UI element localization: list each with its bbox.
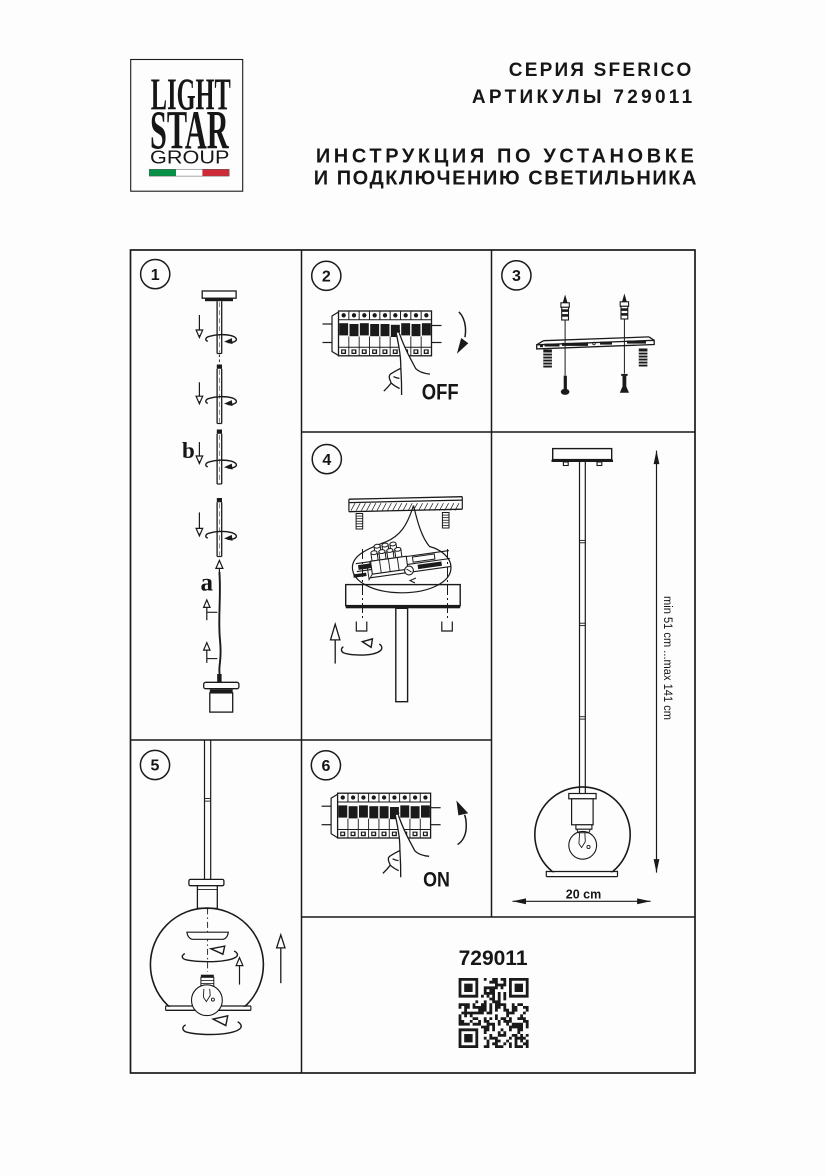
svg-text:СЕРИЯ SFERICO: СЕРИЯ SFERICO bbox=[509, 60, 694, 81]
svg-text:20 cm: 20 cm bbox=[566, 887, 601, 901]
svg-text:min 51 cm ...max 141 cm: min 51 cm ...max 141 cm bbox=[661, 596, 675, 720]
svg-text:ON: ON bbox=[423, 868, 450, 892]
svg-text:b: b bbox=[182, 438, 195, 463]
svg-text:2: 2 bbox=[322, 269, 331, 286]
svg-text:GROUP: GROUP bbox=[150, 148, 229, 168]
svg-text:5: 5 bbox=[151, 758, 160, 775]
svg-text:6: 6 bbox=[321, 758, 330, 775]
svg-text:a: a bbox=[201, 569, 214, 596]
svg-text:АРТИКУЛЫ 729011: АРТИКУЛЫ 729011 bbox=[472, 87, 696, 108]
svg-text:4: 4 bbox=[322, 452, 331, 469]
svg-text:И ПОДКЛЮЧЕНИЮ СВЕТИЛЬНИКА: И ПОДКЛЮЧЕНИЮ СВЕТИЛЬНИКА bbox=[314, 168, 698, 190]
svg-text:1: 1 bbox=[151, 267, 160, 284]
svg-text:3: 3 bbox=[512, 268, 521, 285]
svg-text:OFF: OFF bbox=[422, 380, 459, 405]
svg-text:729011: 729011 bbox=[459, 947, 528, 970]
svg-text:ИНСТРУКЦИЯ ПО УСТАНОВКЕ: ИНСТРУКЦИЯ ПО УСТАНОВКЕ bbox=[316, 145, 698, 167]
